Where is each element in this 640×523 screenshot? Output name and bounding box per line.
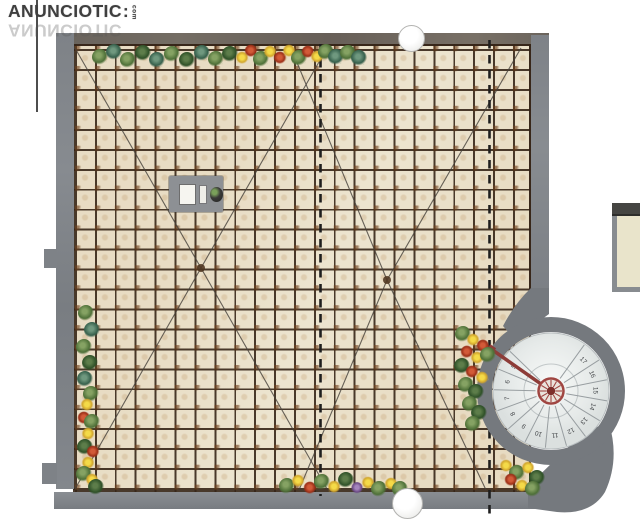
round-column-top [398, 25, 425, 52]
watermark-domain: com [130, 5, 137, 20]
watermark-brand: ANUNCIOTIC [8, 3, 122, 21]
terrace-plan-drawing: 567891011121314151617 ANUNCIOTIC : com A… [0, 0, 640, 523]
round-column-bottom [392, 488, 423, 519]
stair-step-number: 11 [551, 431, 559, 439]
stair-step-number: 15 [591, 387, 598, 395]
watermark-reflection: ANUNCIOTIC [8, 21, 122, 39]
watermark: ANUNCIOTIC : com [8, 3, 137, 21]
spiral-staircase: 567891011121314151617 [0, 0, 640, 523]
watermark-colon: : [123, 3, 129, 21]
